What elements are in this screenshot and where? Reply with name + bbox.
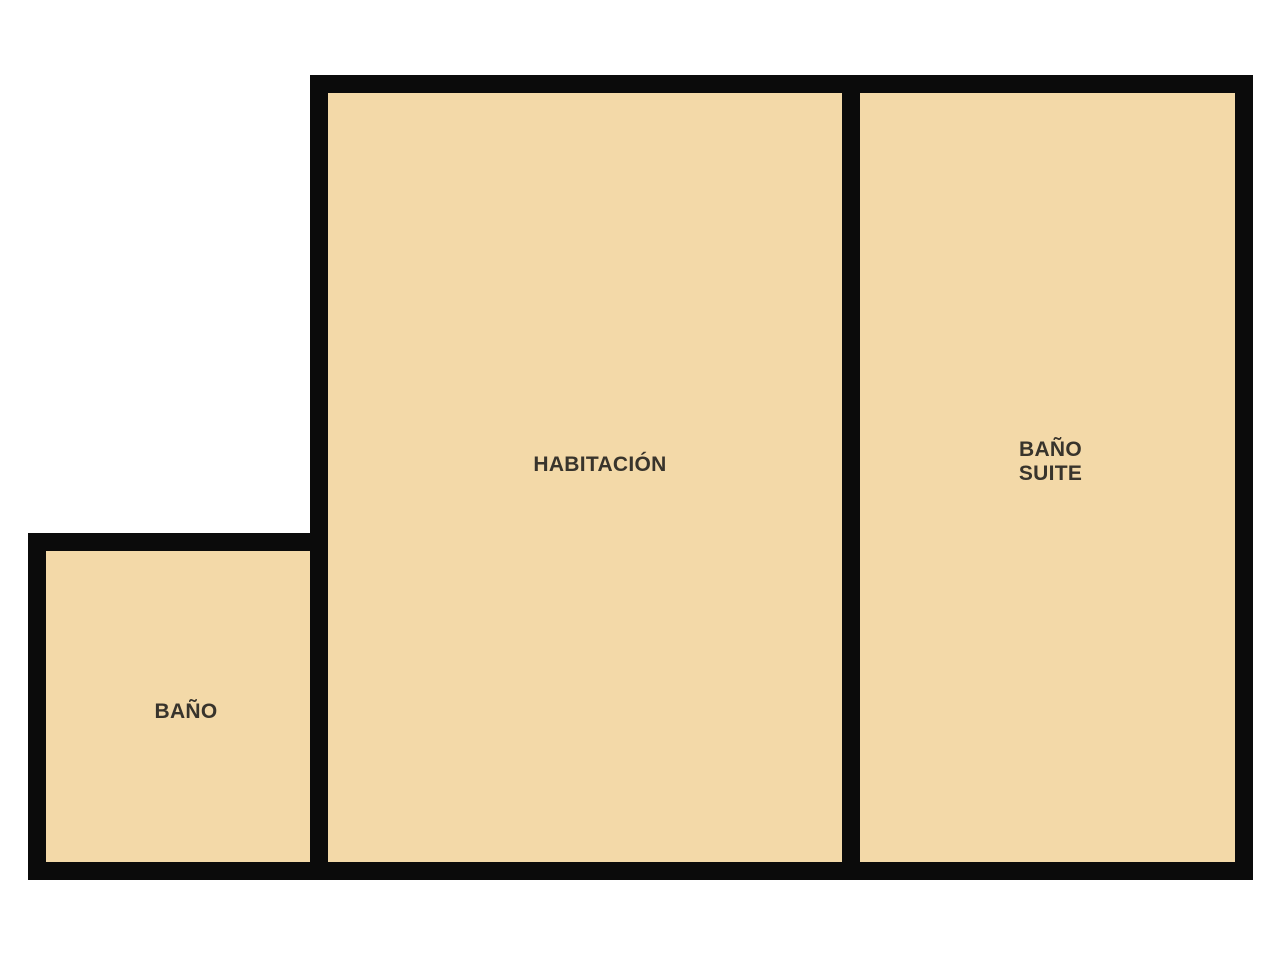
floorplan-canvas: HABITACIÓN BAÑO SUITE BAÑO: [0, 0, 1280, 960]
room-label-habitacion: HABITACIÓN: [533, 453, 666, 477]
room-bano: BAÑO: [28, 533, 328, 880]
room-habitacion: HABITACIÓN: [310, 75, 860, 880]
room-label-bano-suite: BAÑO SUITE: [1019, 438, 1082, 486]
room-label-bano: BAÑO: [154, 700, 217, 724]
room-bano-suite: BAÑO SUITE: [842, 75, 1253, 880]
